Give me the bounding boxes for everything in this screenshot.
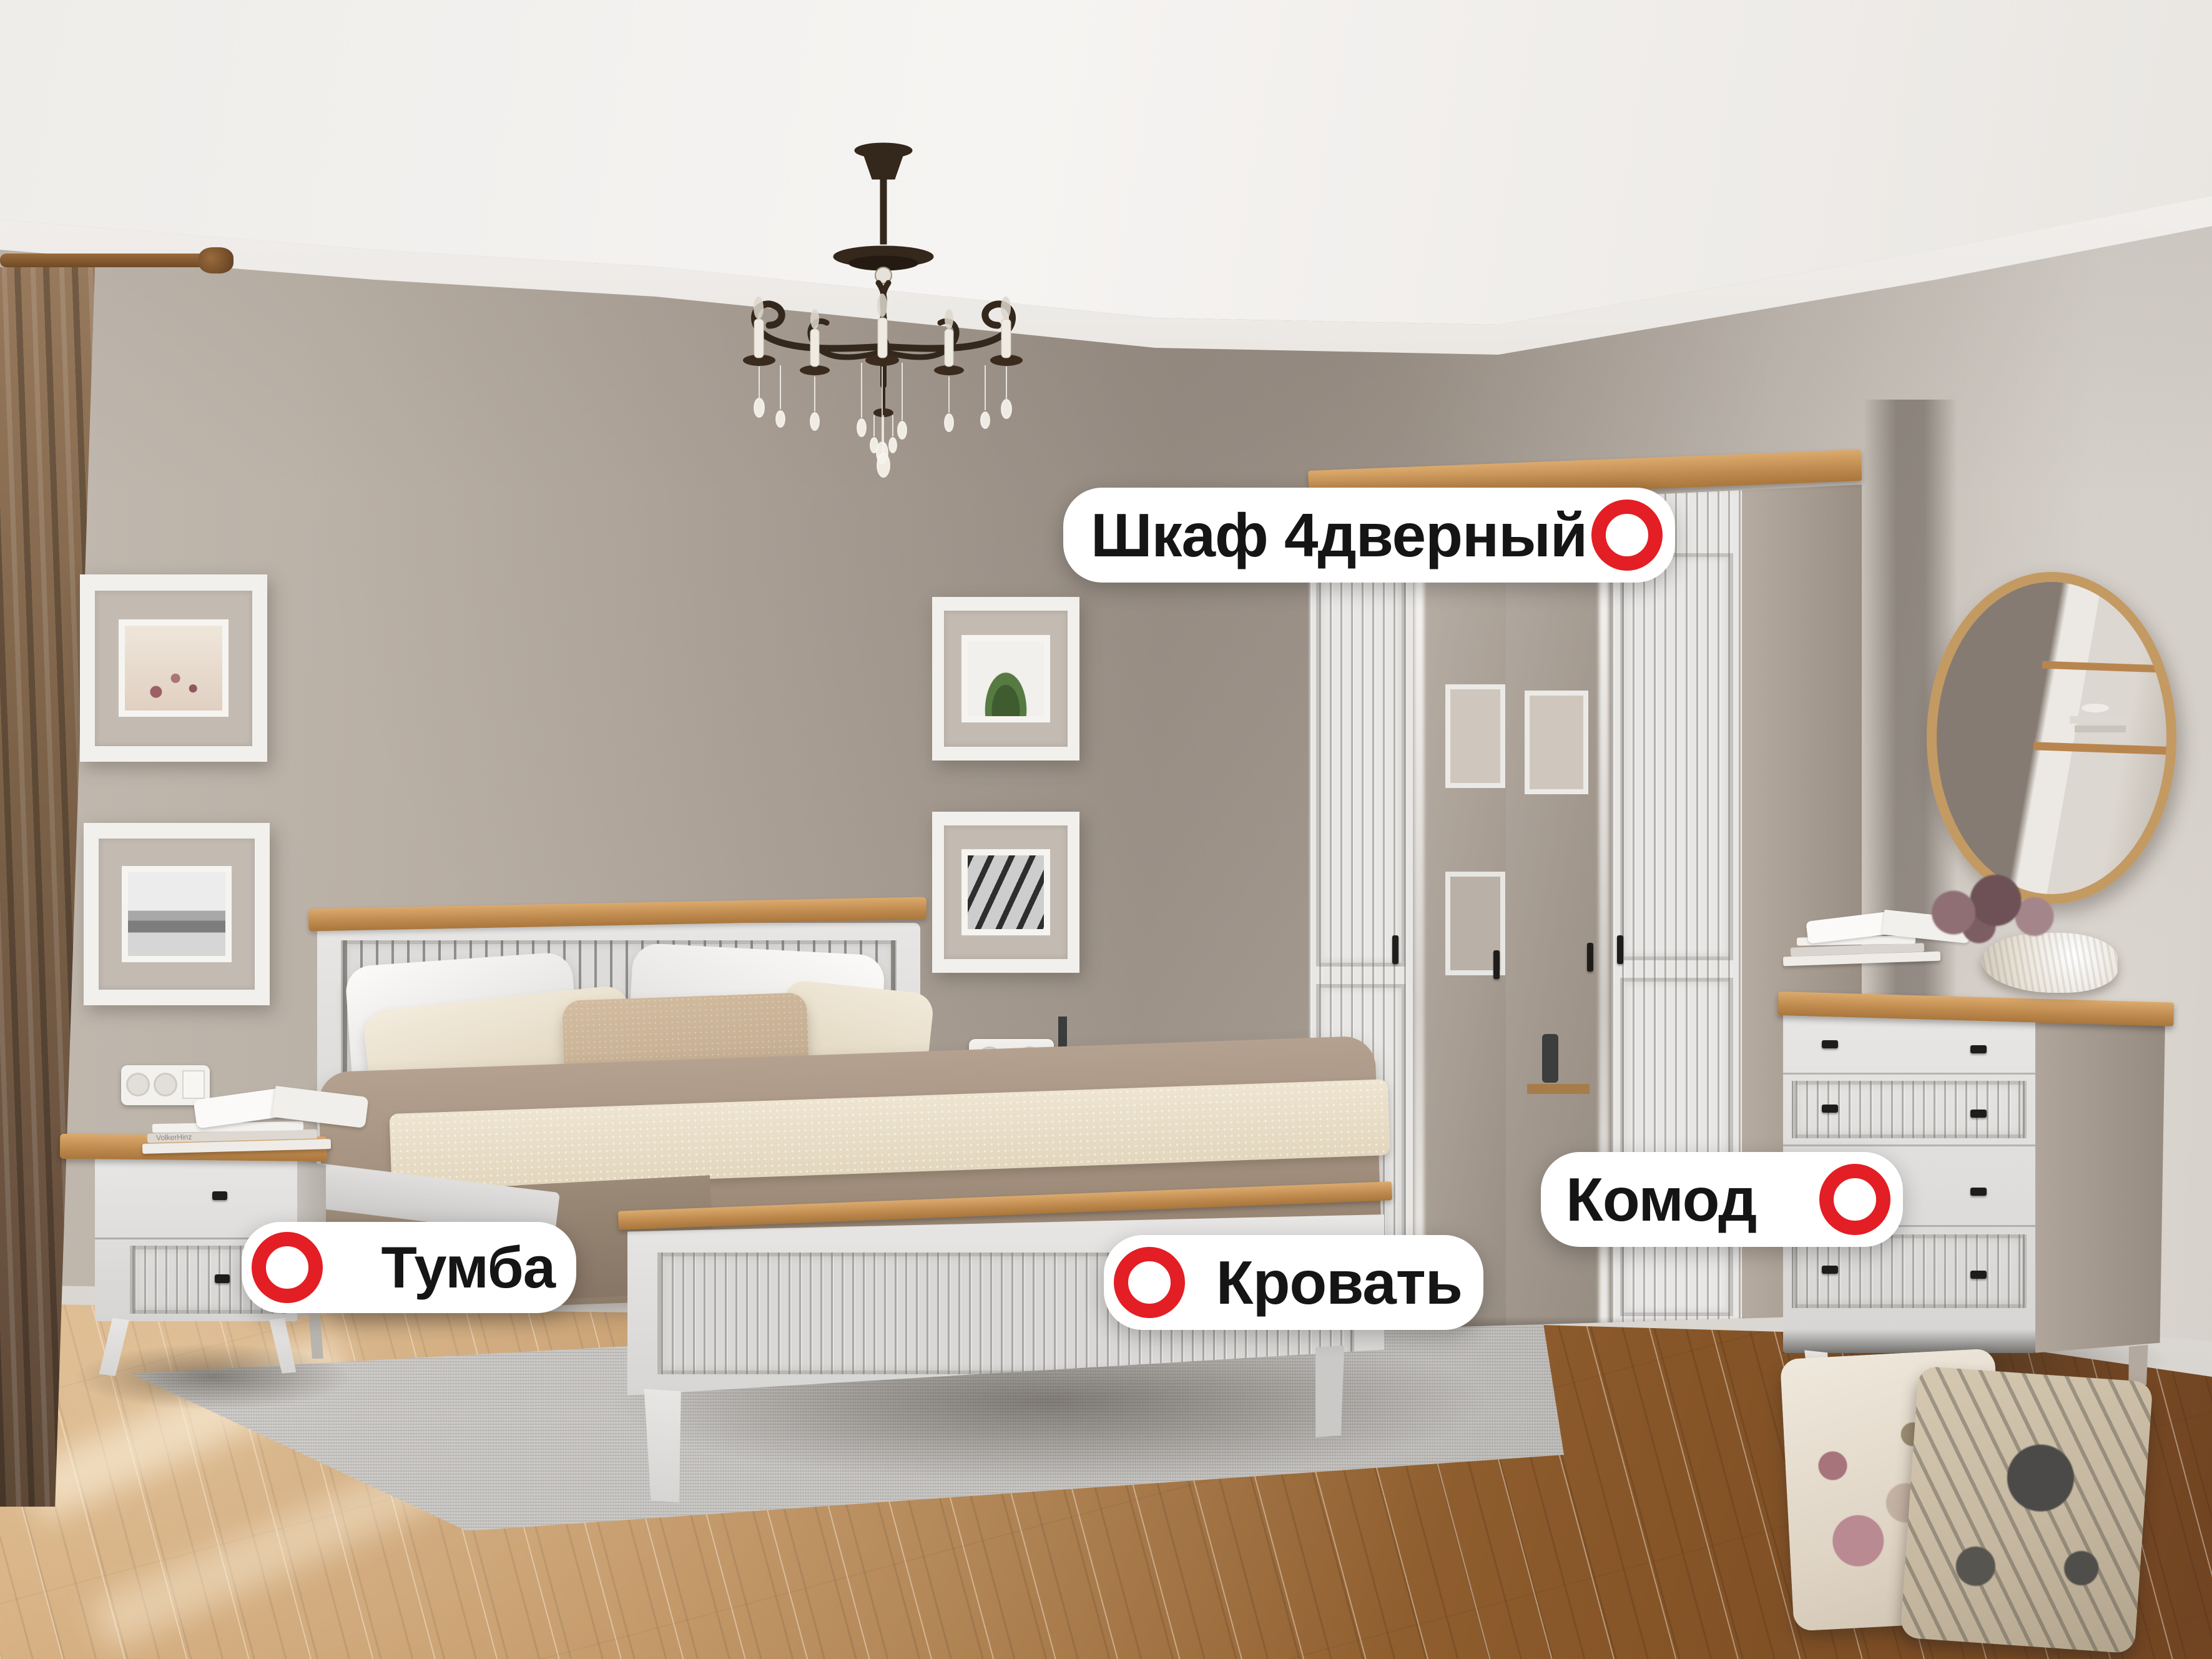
frame-mat: [944, 611, 1068, 746]
label-bed[interactable]: Кровать: [1104, 1235, 1483, 1330]
book-spine-text: VolkerHinz: [156, 1133, 192, 1142]
drawer-handle: [212, 1191, 227, 1200]
flower-art: [119, 619, 229, 717]
wardrobe-handle: [1493, 950, 1500, 979]
mirror-reflection-carafe: [1542, 1034, 1558, 1083]
wardrobe-door-left: [1309, 485, 1414, 1352]
mirror-bowl-reflection: [2082, 704, 2109, 712]
wall-shelf: [1031, 1108, 1262, 1125]
label-dresser-marker-icon[interactable]: [1819, 1164, 1890, 1235]
chandelier: [687, 140, 1074, 546]
mirror-reflection-shelf: [1527, 1084, 1590, 1094]
palm-art: [961, 849, 1051, 935]
mountain-art: [122, 866, 231, 962]
socket: [978, 1046, 1001, 1070]
drawer-handle: [1970, 1045, 1987, 1053]
wall-frame-succulent: [932, 597, 1079, 761]
label-bed-text: Кровать: [1216, 1252, 1462, 1313]
wall-frame-flowers: [80, 574, 267, 762]
label-nightstand-marker-icon[interactable]: [252, 1232, 323, 1303]
mirror-books-reflection: [2070, 716, 2126, 724]
wall-frame-palm: [932, 812, 1079, 973]
wardrobe-handle: [1392, 935, 1398, 964]
label-nightstand-text: Тумба: [381, 1238, 555, 1297]
curtain-rod: [0, 254, 232, 267]
wardrobe-handle: [1617, 935, 1623, 964]
wardrobe-handle: [1587, 943, 1593, 972]
socket: [1018, 1046, 1041, 1070]
round-mirror: [1927, 572, 2176, 904]
drawer-handle: [215, 1274, 230, 1283]
dresser-bottom-shadow: [1783, 1329, 2035, 1353]
label-dresser[interactable]: Комод: [1541, 1152, 1903, 1247]
dresser-side: [2033, 1013, 2165, 1353]
drawer-handle: [1970, 1271, 1987, 1279]
mirror-reflection-frame: [1525, 691, 1588, 794]
mirror-books-reflection: [2075, 726, 2126, 732]
bedroom-scene: VolkerHinz Шкаф 4дверный Кровать Тумба К…: [0, 0, 2212, 1659]
drawer-handle: [1970, 1110, 1987, 1118]
door-panel: [1620, 553, 1733, 960]
frame-mat: [944, 825, 1068, 959]
frame-mat: [99, 839, 255, 990]
mirror-shelf-reflection: [2033, 742, 2166, 754]
dresser-drawer: [1783, 1075, 2035, 1146]
dresser-drawer: [1783, 1013, 2035, 1075]
mirror-reflection-frame: [1445, 684, 1505, 788]
drawer-handle: [1970, 1188, 1987, 1196]
drinking-glass: [1089, 1069, 1118, 1104]
label-dresser-text: Комод: [1566, 1169, 1756, 1230]
label-nightstand[interactable]: Тумба: [242, 1222, 576, 1313]
frame-mat: [95, 591, 252, 746]
door-panel: [1316, 559, 1405, 967]
drawer-handle: [1822, 1040, 1838, 1048]
drawer-handle: [1822, 1266, 1838, 1274]
succulent-art: [961, 635, 1051, 722]
label-wardrobe[interactable]: Шкаф 4дверный: [1063, 488, 1675, 583]
mirror-light-strip: [1414, 485, 1424, 1352]
dried-flowers: [1903, 868, 2072, 949]
label-bed-marker-icon[interactable]: [1114, 1247, 1185, 1318]
drawer-handle: [1822, 1105, 1838, 1113]
wall-frame-mountain: [84, 823, 270, 1005]
label-wardrobe-text: Шкаф 4дверный: [1091, 505, 1587, 566]
glass-carafe: [1040, 1050, 1084, 1101]
label-wardrobe-marker-icon[interactable]: [1591, 500, 1663, 571]
curtain-rod-finial: [199, 247, 233, 273]
mirror-shelf-reflection: [2042, 661, 2162, 673]
wardrobe-mirror-door: [1413, 485, 1507, 1352]
door-panel: [1620, 978, 1733, 1316]
floor-pillow-botanical: [1900, 1366, 2153, 1653]
